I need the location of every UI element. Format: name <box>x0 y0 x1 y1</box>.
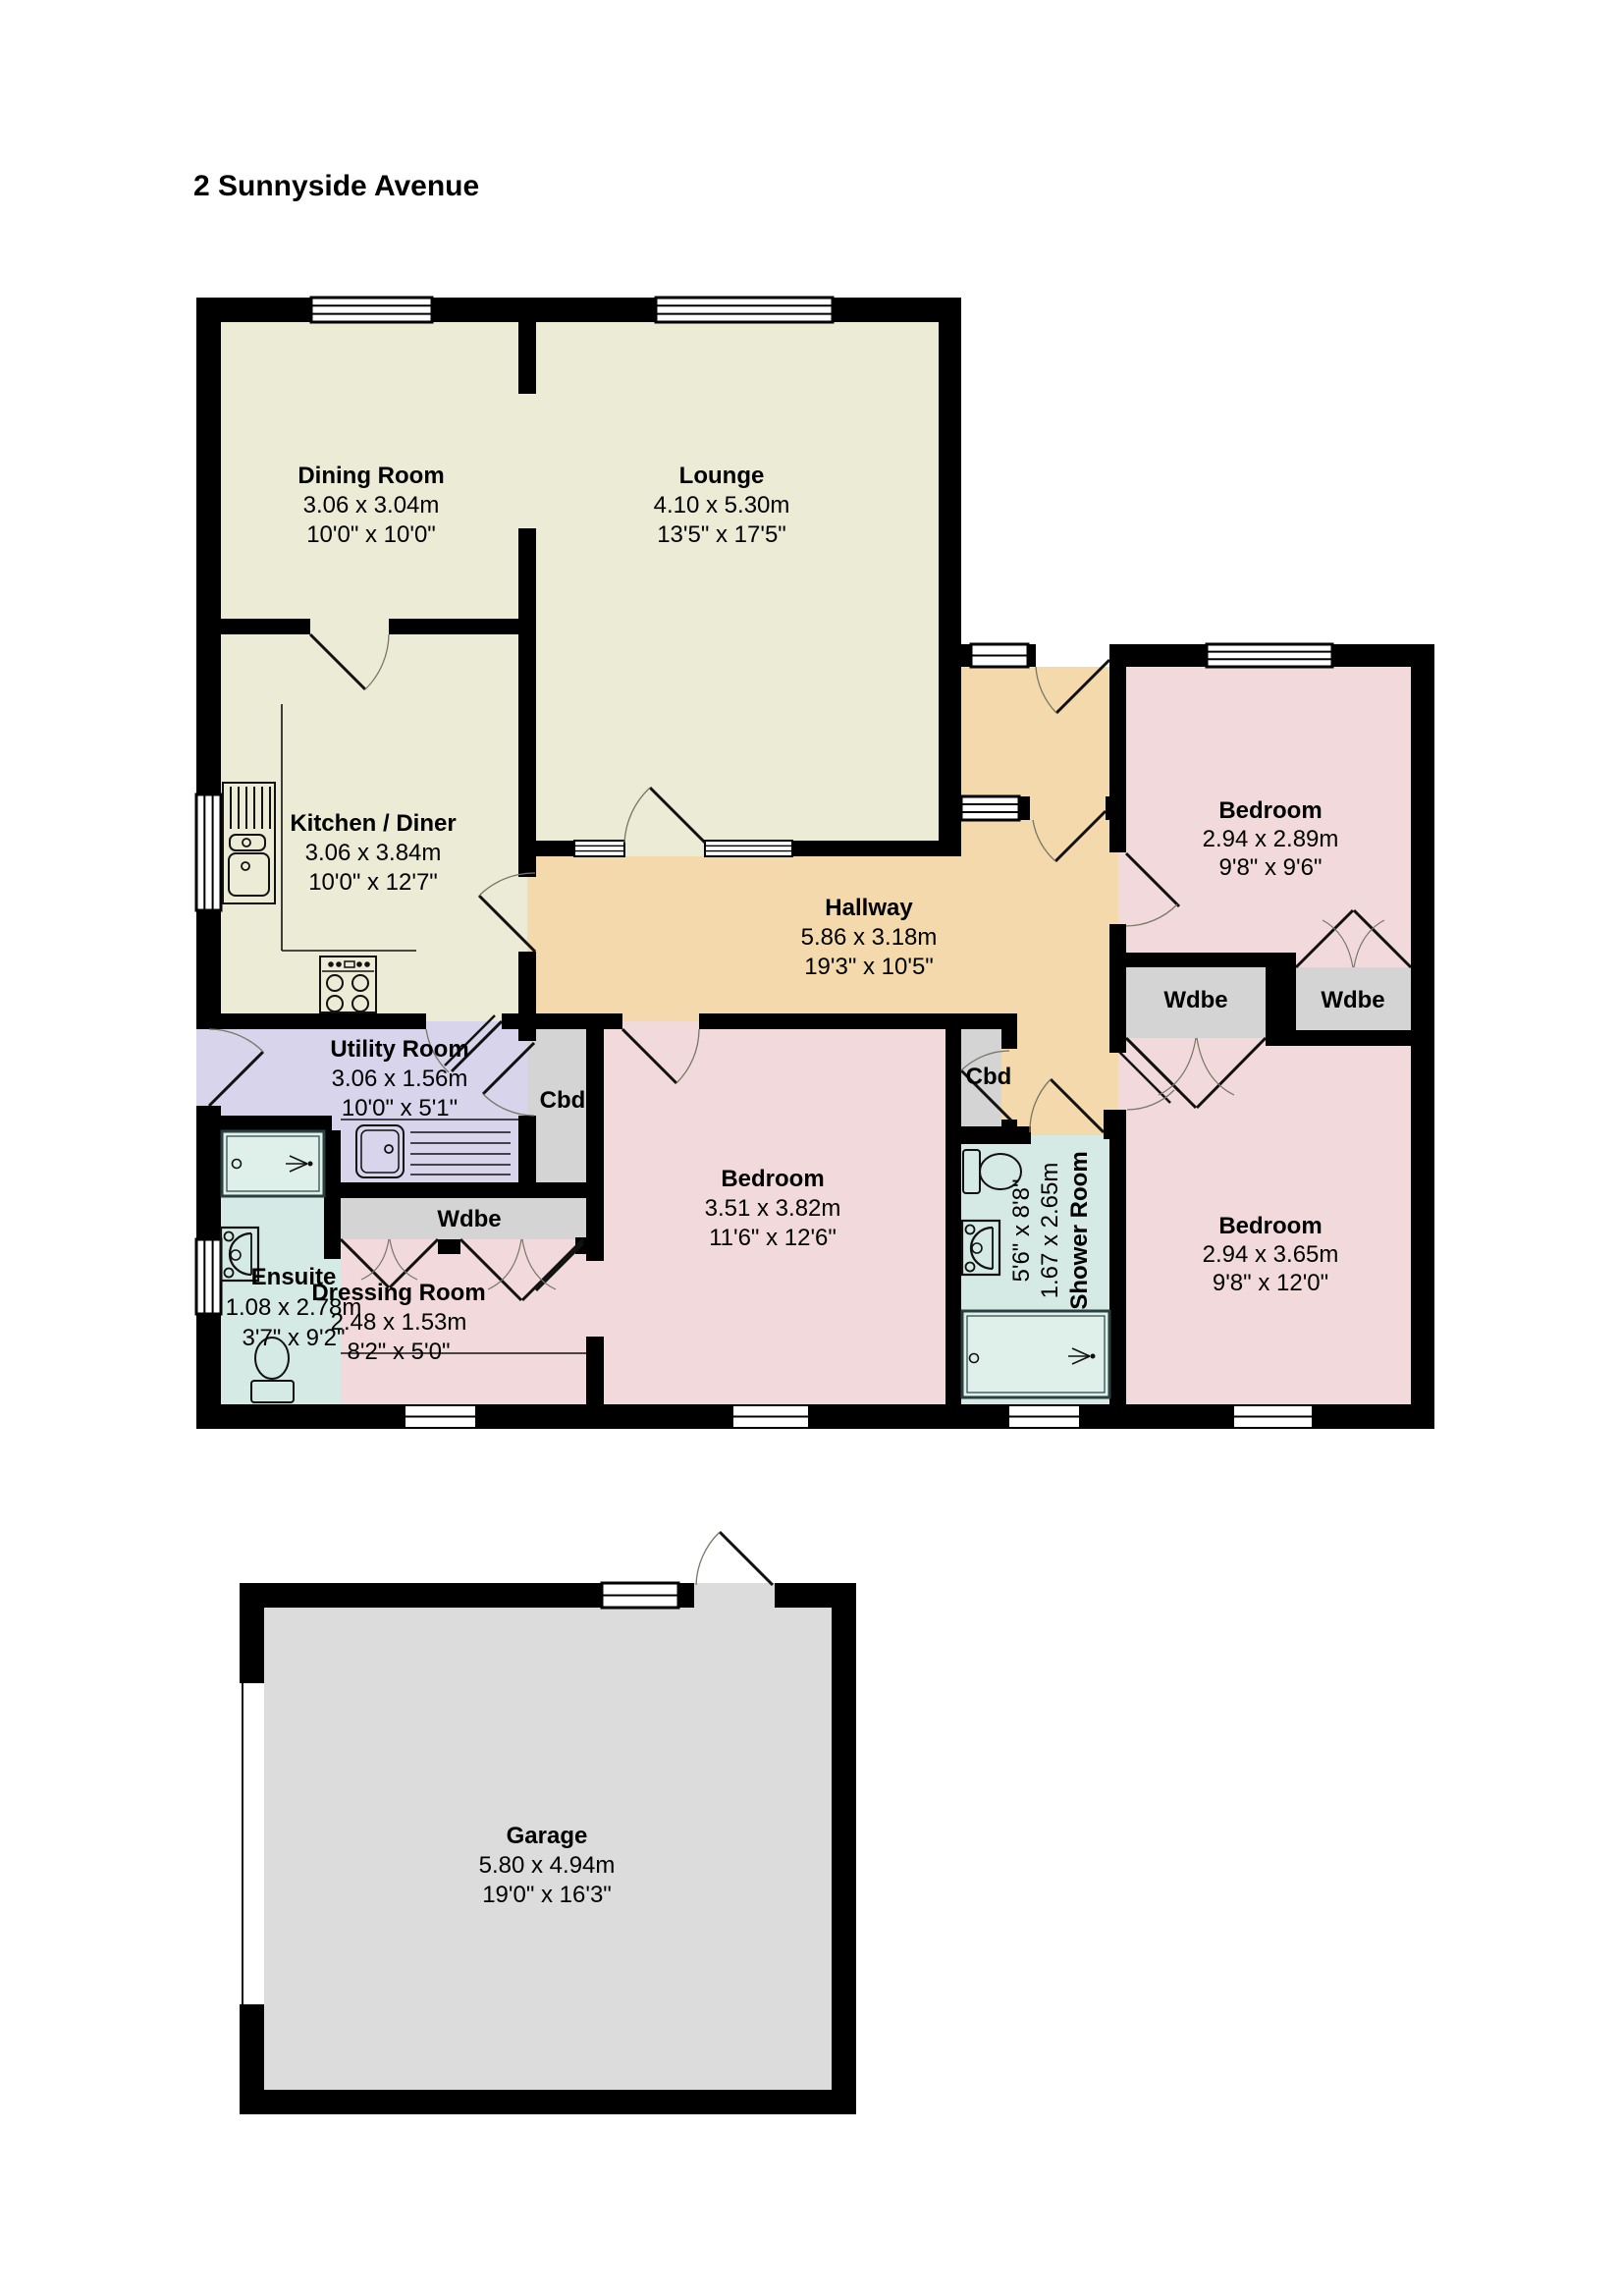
svg-text:3.06 x 3.04m: 3.06 x 3.04m <box>303 492 440 519</box>
svg-text:Wdbe: Wdbe <box>1163 987 1227 1013</box>
svg-text:13'5" x 17'5": 13'5" x 17'5" <box>657 521 786 548</box>
svg-text:Dining Room: Dining Room <box>297 463 444 489</box>
svg-text:Bedroom: Bedroom <box>1218 1213 1322 1239</box>
svg-text:1.67 x 2.65m: 1.67 x 2.65m <box>1037 1163 1063 1299</box>
svg-text:2.48 x 1.53m: 2.48 x 1.53m <box>331 1309 467 1336</box>
svg-text:8'2" x 5'0": 8'2" x 5'0" <box>348 1339 451 1365</box>
svg-text:10'0" x 10'0": 10'0" x 10'0" <box>306 521 436 548</box>
svg-text:Garage: Garage <box>507 1823 588 1849</box>
svg-text:19'3" x 10'5": 19'3" x 10'5" <box>804 954 934 980</box>
svg-text:Wdbe: Wdbe <box>1321 987 1384 1013</box>
svg-text:Bedroom: Bedroom <box>721 1166 824 1192</box>
svg-text:5.86 x 3.18m: 5.86 x 3.18m <box>801 924 938 951</box>
svg-text:4.10 x 5.30m: 4.10 x 5.30m <box>654 492 790 519</box>
svg-text:3.06 x 1.56m: 3.06 x 1.56m <box>332 1066 468 1092</box>
svg-text:Kitchen / Diner: Kitchen / Diner <box>290 810 456 837</box>
svg-text:Cbd: Cbd <box>540 1087 586 1114</box>
svg-text:Hallway: Hallway <box>825 895 913 921</box>
svg-text:10'0" x 5'1": 10'0" x 5'1" <box>342 1095 458 1121</box>
svg-text:Shower Room: Shower Room <box>1066 1151 1093 1309</box>
svg-text:Cbd: Cbd <box>966 1064 1012 1090</box>
svg-text:9'8" x 12'0": 9'8" x 12'0" <box>1213 1270 1328 1296</box>
svg-text:2.94 x 2.89m: 2.94 x 2.89m <box>1203 826 1339 852</box>
svg-text:5'6" x 8'8": 5'6" x 8'8" <box>1008 1179 1035 1283</box>
svg-text:11'6" x 12'6": 11'6" x 12'6" <box>709 1225 837 1251</box>
svg-text:10'0" x 12'7": 10'0" x 12'7" <box>308 869 438 896</box>
svg-text:19'0" x 16'3": 19'0" x 16'3" <box>482 1882 612 1908</box>
svg-text:2 Sunnyside Avenue: 2 Sunnyside Avenue <box>193 170 479 202</box>
svg-text:Bedroom: Bedroom <box>1218 797 1322 824</box>
svg-text:2.94 x 3.65m: 2.94 x 3.65m <box>1203 1241 1339 1268</box>
svg-text:5.80 x 4.94m: 5.80 x 4.94m <box>479 1852 616 1879</box>
svg-text:3.51 x 3.82m: 3.51 x 3.82m <box>705 1195 841 1222</box>
svg-text:Wdbe: Wdbe <box>437 1206 501 1232</box>
svg-text:3.06 x 3.84m: 3.06 x 3.84m <box>305 840 442 866</box>
svg-text:Utility Room: Utility Room <box>330 1036 468 1063</box>
svg-text:Dressing Room: Dressing Room <box>311 1280 485 1306</box>
svg-text:Lounge: Lounge <box>679 463 765 489</box>
svg-text:9'8" x 9'6": 9'8" x 9'6" <box>1219 854 1323 881</box>
